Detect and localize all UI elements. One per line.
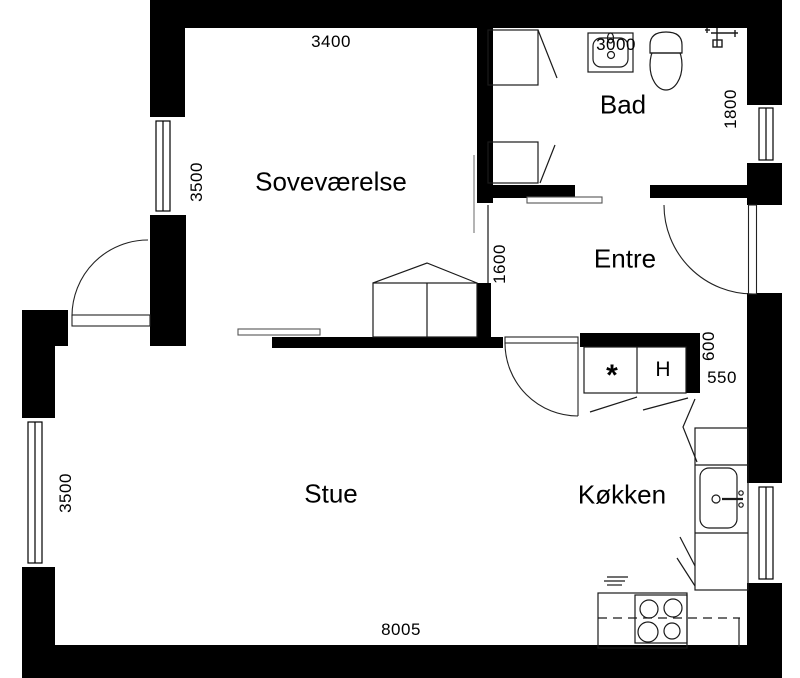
dim-kitchen-nook-width: 550 — [707, 368, 737, 388]
wall-bad-bottom-right — [650, 185, 747, 198]
window-stue-icon — [28, 422, 42, 563]
room-label-koekken: Køkken — [578, 480, 666, 511]
wardrobe-icon — [373, 263, 477, 337]
room-label-stue: Stue — [304, 479, 358, 510]
dim-opening-width: 1600 — [490, 244, 510, 284]
counter-break-line — [677, 558, 695, 586]
exterior-door-icon — [72, 240, 150, 326]
wall-kitchen-stub — [686, 347, 700, 393]
window-koekken-icon — [759, 487, 773, 579]
appliance-cabinets — [584, 347, 688, 412]
tap-icon — [705, 28, 738, 47]
wall-left-upper-b — [150, 215, 186, 346]
wall-left-lower-b — [22, 567, 55, 648]
window-sovevaerelse-icon — [156, 121, 170, 211]
walls — [22, 0, 782, 678]
room-label-entre: Entre — [594, 244, 656, 275]
wall-right-c — [747, 293, 782, 483]
dim-kitchen-nook-height: 600 — [699, 331, 719, 361]
window-bad-icon — [759, 108, 773, 160]
cooker-vent-icon — [604, 577, 628, 585]
wall-bottom — [22, 645, 782, 678]
kitchen-sink-icon — [700, 468, 743, 528]
sovevaerelse-sliding-door-icon — [238, 329, 320, 335]
wall-right-d — [747, 583, 782, 648]
wall-bad-bottom-left — [477, 185, 575, 198]
wall-left-lower-a — [22, 343, 55, 418]
appliance-star-label: * — [606, 359, 618, 393]
stove-icon — [598, 593, 687, 648]
floor-plan: Soveværelse Bad Entre Stue Køkken 3400 3… — [0, 0, 800, 678]
bad-cabinet-upper-icon — [488, 30, 557, 85]
wall-right-a — [747, 0, 782, 105]
dim-bad-depth: 1800 — [721, 89, 741, 129]
kitchen-counter — [695, 428, 748, 590]
hood-label: H — [655, 358, 670, 382]
dim-stue-depth: 3500 — [56, 473, 76, 513]
dim-total-width: 8005 — [381, 620, 421, 640]
wall-top — [150, 0, 782, 28]
wall-entre-bottom — [580, 333, 700, 347]
stue-door-icon — [505, 337, 578, 416]
toilet-icon — [650, 32, 682, 90]
dim-bad-width: 3000 — [596, 35, 636, 55]
wall-bad-sovevaerelse — [477, 28, 493, 203]
bad-sliding-door-icon — [527, 197, 602, 203]
wall-step-corner — [22, 310, 68, 346]
bad-cabinet-lower-icon — [488, 142, 555, 183]
floor-plan-drawing — [0, 0, 800, 678]
wall-left-upper-a — [150, 0, 185, 117]
wall-right-b — [747, 163, 782, 205]
dim-sovevaerelse-depth: 3500 — [187, 162, 207, 202]
room-label-sovevaerelse: Soveværelse — [255, 167, 407, 198]
entry-door-icon — [664, 205, 757, 294]
wall-sovevaerelse-bottom — [272, 337, 503, 348]
dim-sovevaerelse-width: 3400 — [311, 32, 351, 52]
room-label-bad: Bad — [600, 90, 646, 121]
counter-break-line — [680, 537, 695, 566]
